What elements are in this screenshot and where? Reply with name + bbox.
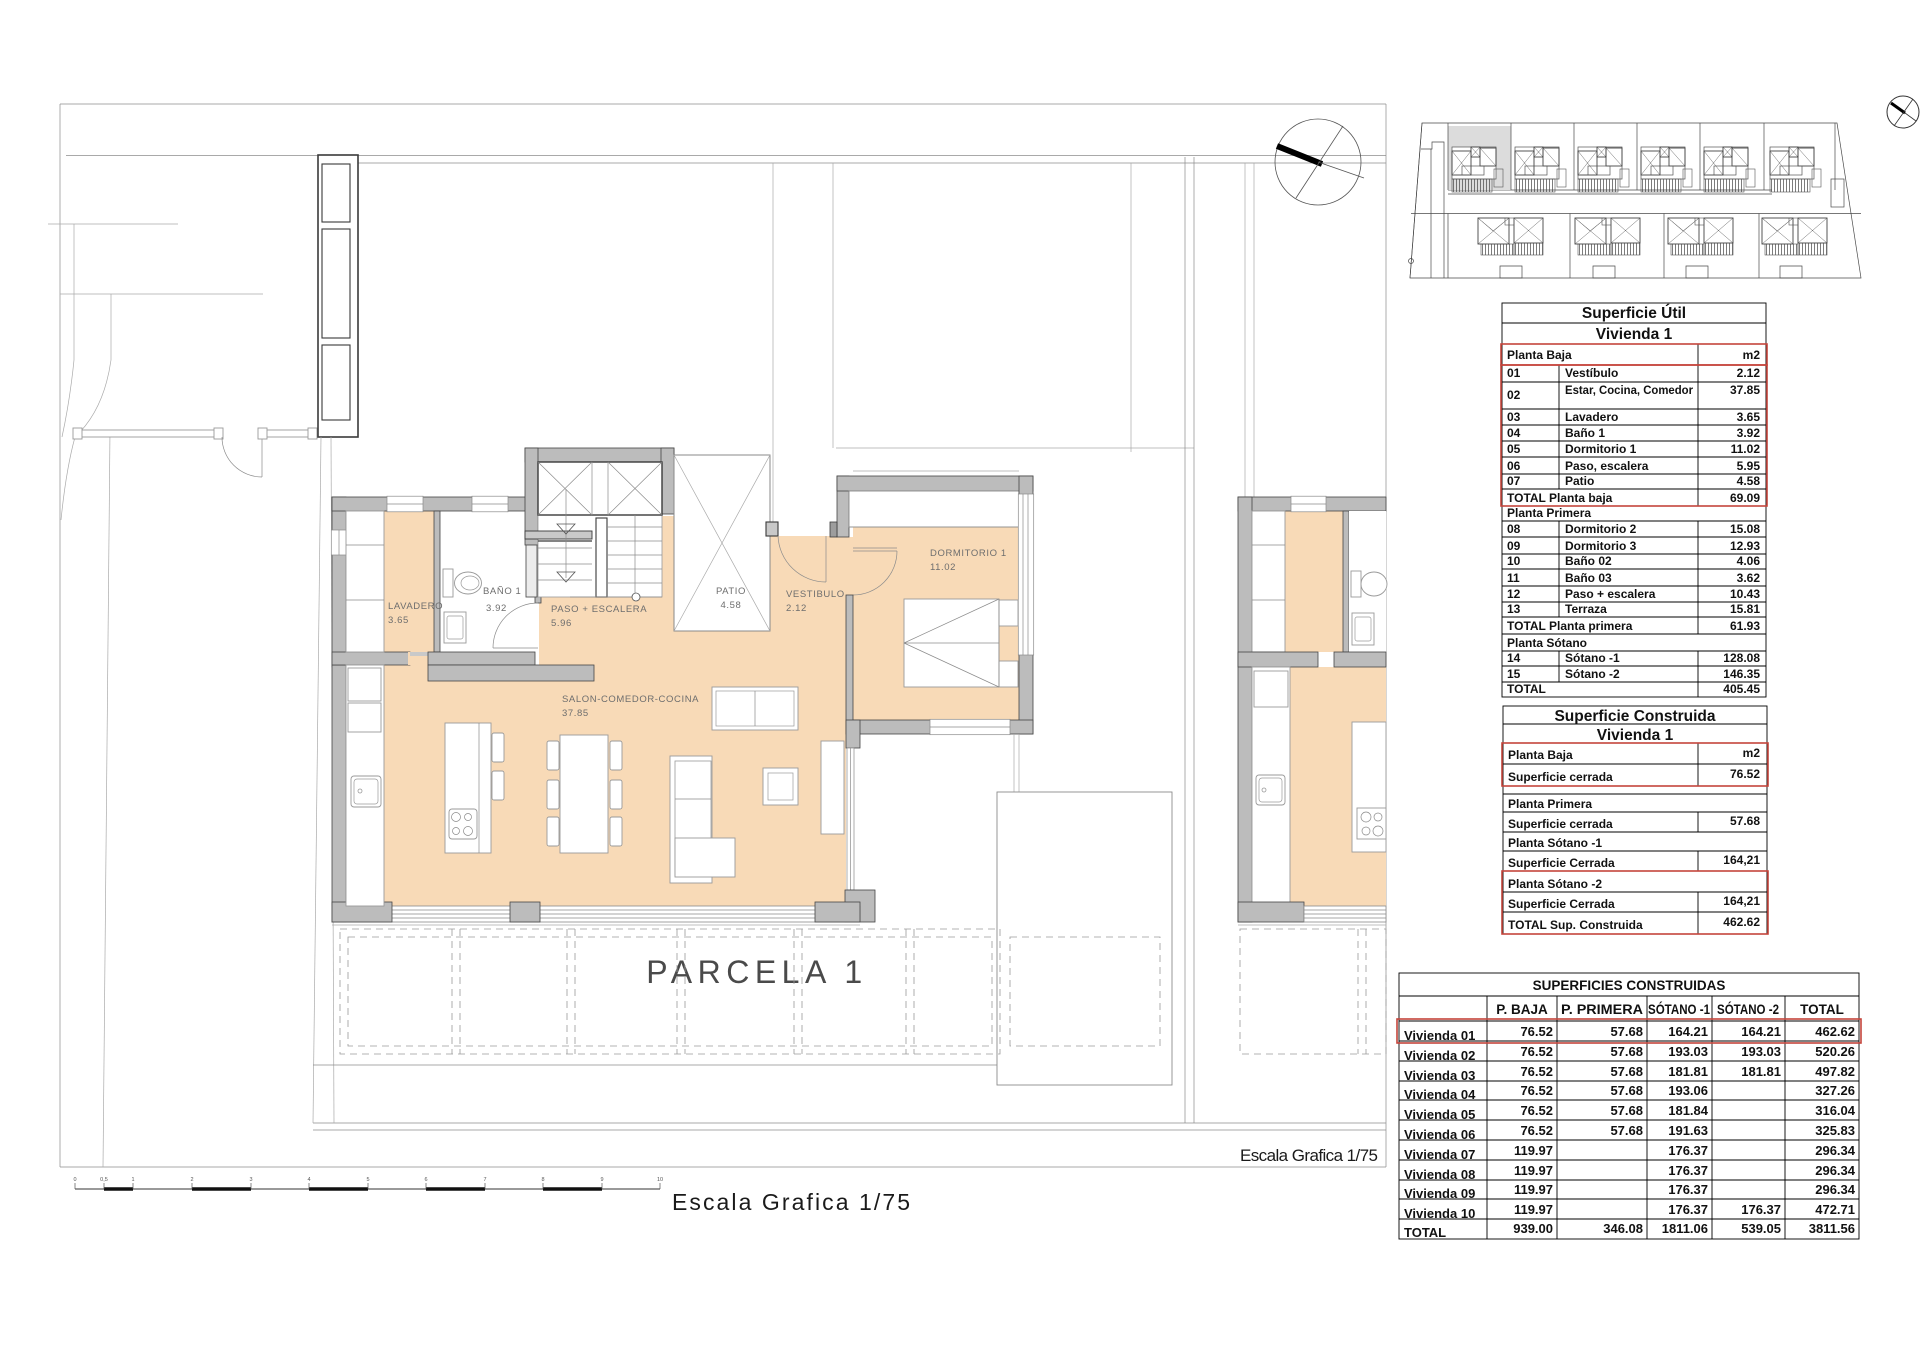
svg-text:TOTAL: TOTAL [1800,1002,1844,1017]
svg-text:Planta Sótano: Planta Sótano [1507,636,1587,650]
svg-text:Escala Grafica 1/75: Escala Grafica 1/75 [672,1189,910,1215]
svg-text:0,5: 0,5 [100,1177,108,1183]
svg-text:76.52: 76.52 [1520,1123,1553,1138]
svg-text:405.45: 405.45 [1723,682,1760,696]
svg-text:Patio: Patio [1565,474,1594,488]
svg-text:Vivienda 02: Vivienda 02 [1404,1048,1475,1063]
svg-text:193.03: 193.03 [1668,1044,1708,1059]
svg-text:PASO + ESCALERA: PASO + ESCALERA [551,604,647,615]
svg-text:164.21: 164.21 [1668,1024,1708,1039]
svg-text:TOTAL Planta baja: TOTAL Planta baja [1507,491,1613,505]
svg-text:119.97: 119.97 [1514,1182,1553,1197]
svg-text:2.12: 2.12 [786,603,807,614]
svg-text:176.37: 176.37 [1668,1182,1708,1197]
svg-text:10.43: 10.43 [1730,587,1760,601]
svg-text:04: 04 [1507,426,1521,440]
svg-text:Superficie Útil: Superficie Útil [1582,304,1686,322]
svg-text:Vivienda 08: Vivienda 08 [1404,1167,1475,1182]
svg-text:Dormitorio 3: Dormitorio 3 [1565,539,1637,553]
svg-text:Superficie Construida: Superficie Construida [1554,708,1715,725]
svg-text:Baño 03: Baño 03 [1565,571,1612,585]
svg-text:462.62: 462.62 [1723,915,1760,929]
svg-text:P. PRIMERA: P. PRIMERA [1561,1002,1643,1017]
svg-text:03: 03 [1507,410,1521,424]
svg-text:146.35: 146.35 [1723,667,1760,681]
svg-text:164,21: 164,21 [1723,853,1760,867]
svg-text:Paso, escalera: Paso, escalera [1565,459,1649,473]
svg-text:76.52: 76.52 [1520,1064,1553,1079]
svg-text:DORMITORIO 1: DORMITORIO 1 [930,548,1007,559]
svg-text:176.37: 176.37 [1668,1163,1708,1178]
svg-text:4.58: 4.58 [1737,474,1761,488]
svg-text:TOTAL Planta primera: TOTAL Planta primera [1507,619,1633,633]
svg-text:296.34: 296.34 [1815,1182,1856,1197]
svg-text:Superficie Cerrada: Superficie Cerrada [1508,897,1615,911]
svg-text:Vivienda 10: Vivienda 10 [1404,1206,1475,1221]
svg-text:15: 15 [1507,667,1521,681]
svg-text:57.68: 57.68 [1610,1103,1643,1118]
svg-text:Planta Baja: Planta Baja [1507,348,1572,362]
svg-text:01: 01 [1507,366,1521,380]
svg-text:Dormitorio 1: Dormitorio 1 [1565,442,1637,456]
svg-text:181.84: 181.84 [1668,1103,1709,1118]
svg-text:181.81: 181.81 [1668,1064,1708,1079]
svg-text:SÓTANO -1: SÓTANO -1 [1648,1002,1710,1017]
svg-text:3: 3 [249,1177,252,1183]
svg-text:119.97: 119.97 [1514,1163,1553,1178]
svg-text:PARCELA 1: PARCELA 1 [646,954,867,990]
svg-text:Vivienda 06: Vivienda 06 [1404,1127,1475,1142]
svg-text:193.06: 193.06 [1668,1083,1708,1098]
svg-text:PATIO: PATIO [716,586,746,597]
svg-text:76.52: 76.52 [1520,1083,1553,1098]
svg-text:57.68: 57.68 [1610,1044,1643,1059]
svg-text:Terraza: Terraza [1565,602,1607,616]
svg-text:Planta Baja: Planta Baja [1508,748,1573,762]
svg-text:325.83: 325.83 [1815,1123,1855,1138]
svg-text:SALON-COMEDOR-COCINA: SALON-COMEDOR-COCINA [562,694,699,705]
svg-text:119.97: 119.97 [1514,1202,1553,1217]
svg-text:5.96: 5.96 [551,618,572,629]
svg-text:346.08: 346.08 [1603,1221,1643,1236]
svg-text:Planta Sótano -1: Planta Sótano -1 [1508,836,1602,850]
svg-text:76.52: 76.52 [1520,1044,1553,1059]
svg-text:TOTAL: TOTAL [1404,1225,1446,1240]
svg-text:Escala Grafica 1/75: Escala Grafica 1/75 [1240,1146,1378,1165]
svg-text:37.85: 37.85 [562,708,589,719]
svg-text:06: 06 [1507,459,1521,473]
svg-text:3.92: 3.92 [486,603,507,614]
svg-text:Baño 1: Baño 1 [1565,426,1605,440]
svg-text:11: 11 [1507,571,1520,585]
svg-text:37.85: 37.85 [1730,383,1760,397]
svg-text:8: 8 [541,1177,544,1183]
svg-text:10: 10 [657,1177,663,1183]
svg-text:11.02: 11.02 [930,562,956,573]
svg-text:Superficie Cerrada: Superficie Cerrada [1508,856,1615,870]
svg-text:69.09: 69.09 [1730,491,1760,505]
svg-text:LAVADERO: LAVADERO [388,601,443,612]
svg-text:57.68: 57.68 [1610,1123,1643,1138]
svg-text:13: 13 [1507,602,1521,616]
svg-text:Vivienda 07: Vivienda 07 [1404,1147,1475,1162]
svg-text:Sótano -2: Sótano -2 [1565,667,1620,681]
svg-text:119.97: 119.97 [1514,1143,1553,1158]
svg-text:193.03: 193.03 [1741,1044,1781,1059]
svg-text:14: 14 [1507,651,1521,665]
svg-text:SÓTANO -2: SÓTANO -2 [1717,1002,1779,1017]
svg-text:57.68: 57.68 [1610,1024,1643,1039]
svg-text:08: 08 [1507,522,1521,536]
svg-text:Superficie cerrada: Superficie cerrada [1508,817,1613,831]
svg-text:1811.06: 1811.06 [1662,1221,1708,1236]
svg-text:m2: m2 [1743,348,1761,362]
svg-text:Estar, Cocina, Comedor: Estar, Cocina, Comedor [1565,383,1693,397]
svg-text:Vestíbulo: Vestíbulo [1565,366,1618,380]
svg-text:76.52: 76.52 [1730,767,1760,781]
svg-text:12: 12 [1507,587,1521,601]
svg-text:Superficie cerrada: Superficie cerrada [1508,770,1613,784]
svg-text:128.08: 128.08 [1723,651,1760,665]
svg-text:6: 6 [424,1177,427,1183]
svg-text:181.81: 181.81 [1741,1064,1781,1079]
svg-text:9: 9 [600,1177,603,1183]
svg-text:472.71: 472.71 [1815,1202,1855,1217]
svg-text:164,21: 164,21 [1723,894,1760,908]
svg-text:2.12: 2.12 [1737,366,1761,380]
svg-text:Vivienda 03: Vivienda 03 [1404,1068,1475,1083]
svg-text:Sótano -1: Sótano -1 [1565,651,1620,665]
svg-text:76.52: 76.52 [1520,1103,1553,1118]
svg-text:Dormitorio 2: Dormitorio 2 [1565,522,1637,536]
svg-text:Lavadero: Lavadero [1565,410,1618,424]
svg-text:Baño 02: Baño 02 [1565,554,1612,568]
svg-text:327.26: 327.26 [1815,1083,1855,1098]
svg-text:10: 10 [1507,554,1521,568]
svg-text:15.08: 15.08 [1730,522,1760,536]
svg-text:164.21: 164.21 [1741,1024,1781,1039]
svg-text:TOTAL: TOTAL [1507,682,1546,696]
svg-text:57.68: 57.68 [1730,814,1760,828]
svg-text:939.00: 939.00 [1513,1221,1553,1236]
svg-text:09: 09 [1507,539,1521,553]
svg-text:0: 0 [73,1177,76,1183]
svg-text:3.92: 3.92 [1737,426,1761,440]
svg-text:BAÑO 1: BAÑO 1 [483,586,521,597]
svg-text:3811.56: 3811.56 [1809,1221,1855,1236]
svg-text:05: 05 [1507,442,1521,456]
svg-text:TOTAL Sup. Construida: TOTAL Sup. Construida [1508,918,1643,932]
svg-text:539.05: 539.05 [1741,1221,1781,1236]
svg-text:m2: m2 [1743,746,1761,760]
svg-text:11.02: 11.02 [1731,442,1761,456]
svg-text:2: 2 [190,1177,193,1183]
svg-text:3.62: 3.62 [1737,571,1761,585]
svg-text:4: 4 [307,1177,310,1183]
svg-text:Vivienda 09: Vivienda 09 [1404,1186,1475,1201]
svg-text:02: 02 [1507,388,1521,402]
svg-text:176.37: 176.37 [1741,1202,1781,1217]
svg-text:76.52: 76.52 [1520,1024,1553,1039]
svg-text:296.34: 296.34 [1815,1163,1856,1178]
svg-text:P. BAJA: P. BAJA [1496,1002,1548,1017]
svg-text:176.37: 176.37 [1668,1143,1708,1158]
svg-text:57.68: 57.68 [1610,1064,1643,1079]
svg-text:57.68: 57.68 [1610,1083,1643,1098]
svg-text:520.26: 520.26 [1815,1044,1855,1059]
svg-text:12.93: 12.93 [1730,539,1760,553]
svg-text:Vivienda 05: Vivienda 05 [1404,1107,1475,1122]
svg-text:4.06: 4.06 [1737,554,1761,568]
svg-text:VESTIBULO: VESTIBULO [786,589,845,600]
svg-text:Vivienda 04: Vivienda 04 [1404,1087,1476,1102]
svg-text:15.81: 15.81 [1730,602,1760,616]
svg-text:191.63: 191.63 [1668,1123,1708,1138]
svg-text:497.82: 497.82 [1815,1064,1855,1079]
svg-text:176.37: 176.37 [1668,1202,1708,1217]
svg-text:1: 1 [131,1177,134,1183]
svg-text:5: 5 [366,1177,369,1183]
svg-text:07: 07 [1507,474,1521,488]
svg-text:462.62: 462.62 [1815,1024,1855,1039]
svg-text:Paso + escalera: Paso + escalera [1565,587,1656,601]
svg-text:Planta Primera: Planta Primera [1507,506,1591,520]
svg-text:3.65: 3.65 [388,615,409,626]
svg-text:Vivienda 1: Vivienda 1 [1596,326,1673,343]
svg-text:4.58: 4.58 [721,600,742,611]
svg-text:3.65: 3.65 [1737,410,1761,424]
svg-text:Planta Sótano -2: Planta Sótano -2 [1508,877,1602,891]
svg-text:Vivienda 01: Vivienda 01 [1404,1028,1475,1043]
svg-text:316.04: 316.04 [1815,1103,1856,1118]
svg-text:7: 7 [483,1177,486,1183]
svg-text:Vivienda 1: Vivienda 1 [1597,727,1674,744]
svg-text:SUPERFICIES CONSTRUIDAS: SUPERFICIES CONSTRUIDAS [1533,978,1726,993]
svg-text:296.34: 296.34 [1815,1143,1856,1158]
svg-text:Planta Primera: Planta Primera [1508,797,1592,811]
svg-text:5.95: 5.95 [1737,459,1761,473]
svg-text:61.93: 61.93 [1730,619,1760,633]
